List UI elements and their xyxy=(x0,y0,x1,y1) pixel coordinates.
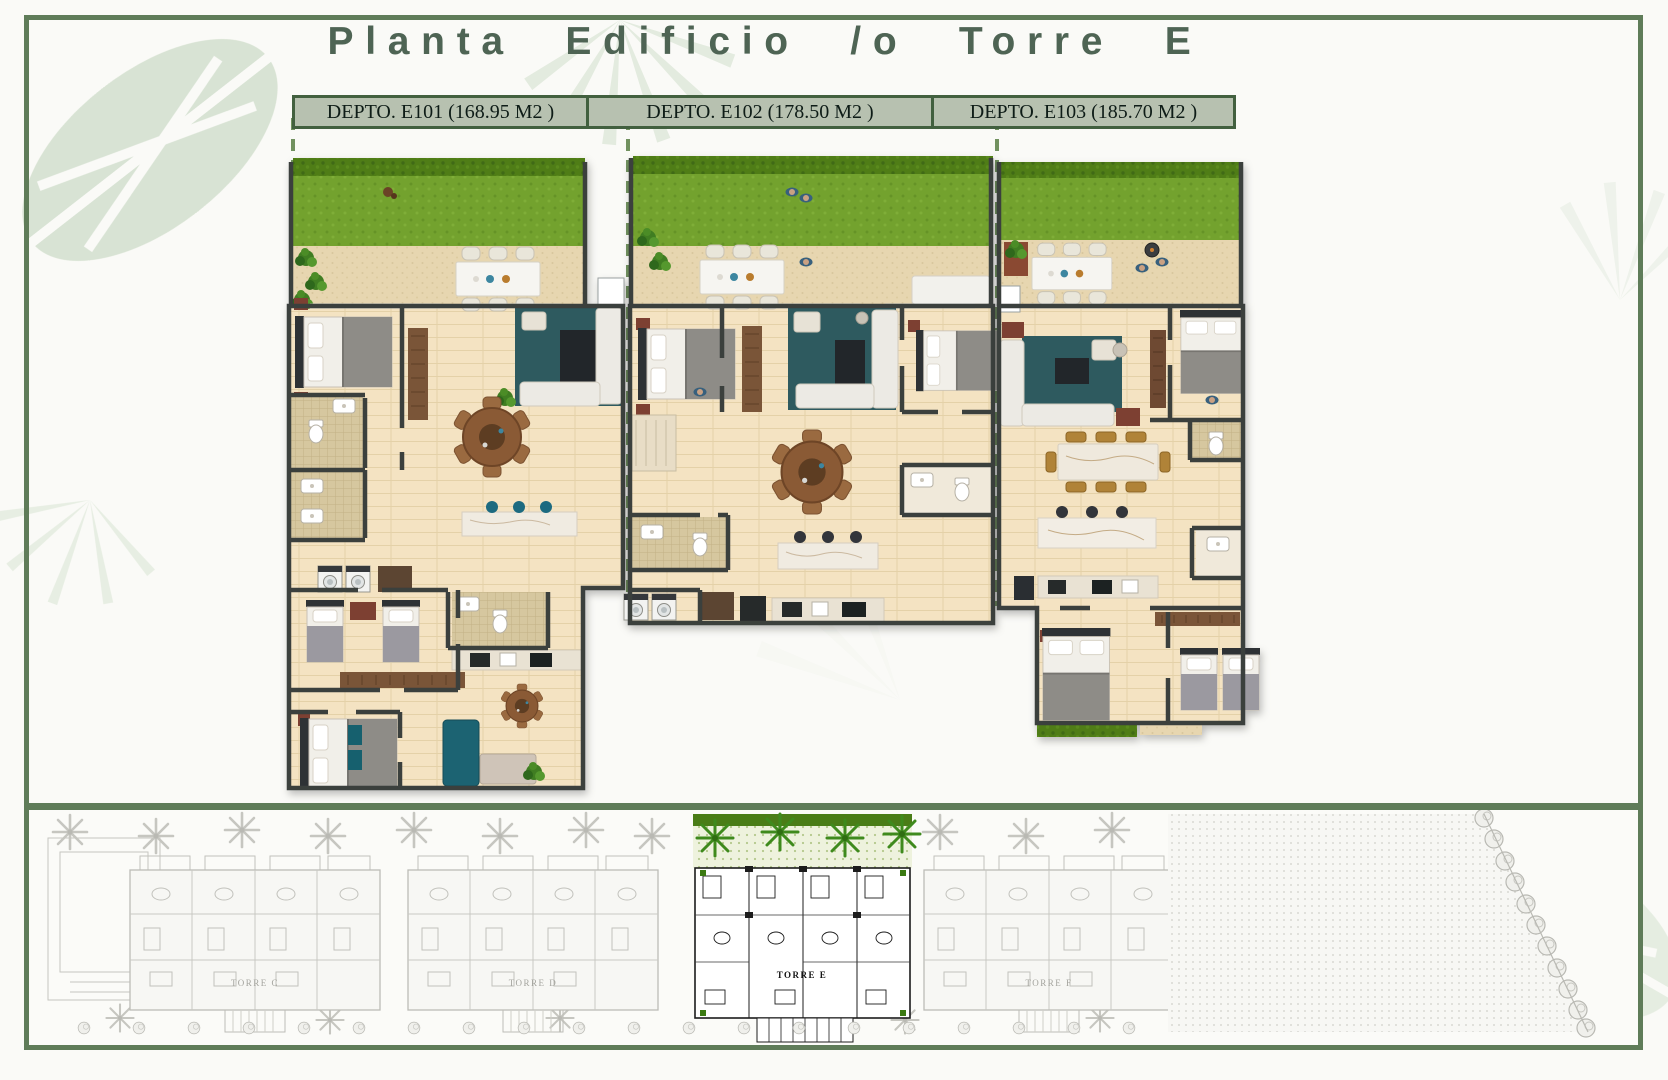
apartment-e102-plan xyxy=(624,156,998,623)
twin-bed-e103 xyxy=(1180,648,1218,710)
apartment-header-e101-label: DEPTO. E101 (168.95 M2 ) xyxy=(327,101,554,124)
lounge-e102 xyxy=(912,276,990,304)
sofa-e102 xyxy=(872,310,898,408)
site-tower-d xyxy=(408,856,658,1032)
brochure-page: TORRE C TORRE D TORRE F xyxy=(0,0,1668,1080)
apartment-header-e101: DEPTO. E101 (168.95 M2 ) xyxy=(292,95,589,129)
kitchen-bar-e102 xyxy=(778,543,878,569)
outdoor-dining-e103 xyxy=(1032,243,1112,304)
marble-dining-e103 xyxy=(1058,444,1158,480)
garden-e101 xyxy=(293,176,585,246)
garden-e102 xyxy=(633,174,993,246)
site-tower-c xyxy=(130,856,380,1032)
bed-icon xyxy=(295,316,392,388)
apartment-header-e103-label: DEPTO. E103 (185.70 M2 ) xyxy=(970,101,1197,124)
twin-bed-e101 xyxy=(306,600,344,662)
hedge-e103 xyxy=(1000,162,1241,178)
apartment-header-e102: DEPTO. E102 (178.50 M2 ) xyxy=(586,95,934,129)
apartment-headers: DEPTO. E101 (168.95 M2 ) DEPTO. E102 (17… xyxy=(292,95,1236,129)
kitchen-island-e103 xyxy=(1038,518,1156,548)
outdoor-dining-e101 xyxy=(456,247,540,311)
apartment-header-e102-label: DEPTO. E102 (178.50 M2 ) xyxy=(646,101,873,124)
bed-icon xyxy=(1042,628,1110,720)
patio-hedge-e103 xyxy=(1037,725,1137,737)
apartment-e103-plan xyxy=(998,162,1260,737)
bed-icon xyxy=(916,330,998,391)
page-title: Planta Edificio /o Torre E xyxy=(285,20,1245,64)
apartment-header-e103: DEPTO. E103 (185.70 M2 ) xyxy=(931,95,1236,129)
teal-sofa-e101 xyxy=(443,720,479,786)
site-tower-e-label: TORRE E xyxy=(777,970,828,980)
site-tower-c-label: TORRE C xyxy=(231,978,279,988)
site-plan-strip: TORRE C TORRE D TORRE F xyxy=(29,809,1640,1046)
apartment-e101-plan xyxy=(289,158,624,790)
section-divider-bar xyxy=(24,803,1643,810)
kitchen-bar-e101 xyxy=(462,512,577,536)
terrace-door-e101 xyxy=(598,278,624,306)
twin-bed-e101 xyxy=(382,600,420,662)
bed-icon xyxy=(1180,310,1242,393)
outdoor-dining-e102 xyxy=(700,245,784,309)
terrace-e101 xyxy=(293,246,585,306)
site-tower-f-label: TORRE F xyxy=(1025,978,1072,988)
garden-e103 xyxy=(1000,178,1241,240)
site-tower-f xyxy=(924,856,1174,1032)
sofa-e103 xyxy=(1000,340,1024,426)
washer-icon xyxy=(624,594,648,620)
floorplan-artwork: TORRE C TORRE D TORRE F xyxy=(0,0,1668,1080)
site-tower-d-label: TORRE D xyxy=(509,978,558,988)
site-tower-e-highlighted: TORRE E xyxy=(693,814,920,1042)
washer-icon xyxy=(652,594,676,620)
hedge-e102 xyxy=(633,156,993,174)
hedge-e101 xyxy=(293,158,585,176)
